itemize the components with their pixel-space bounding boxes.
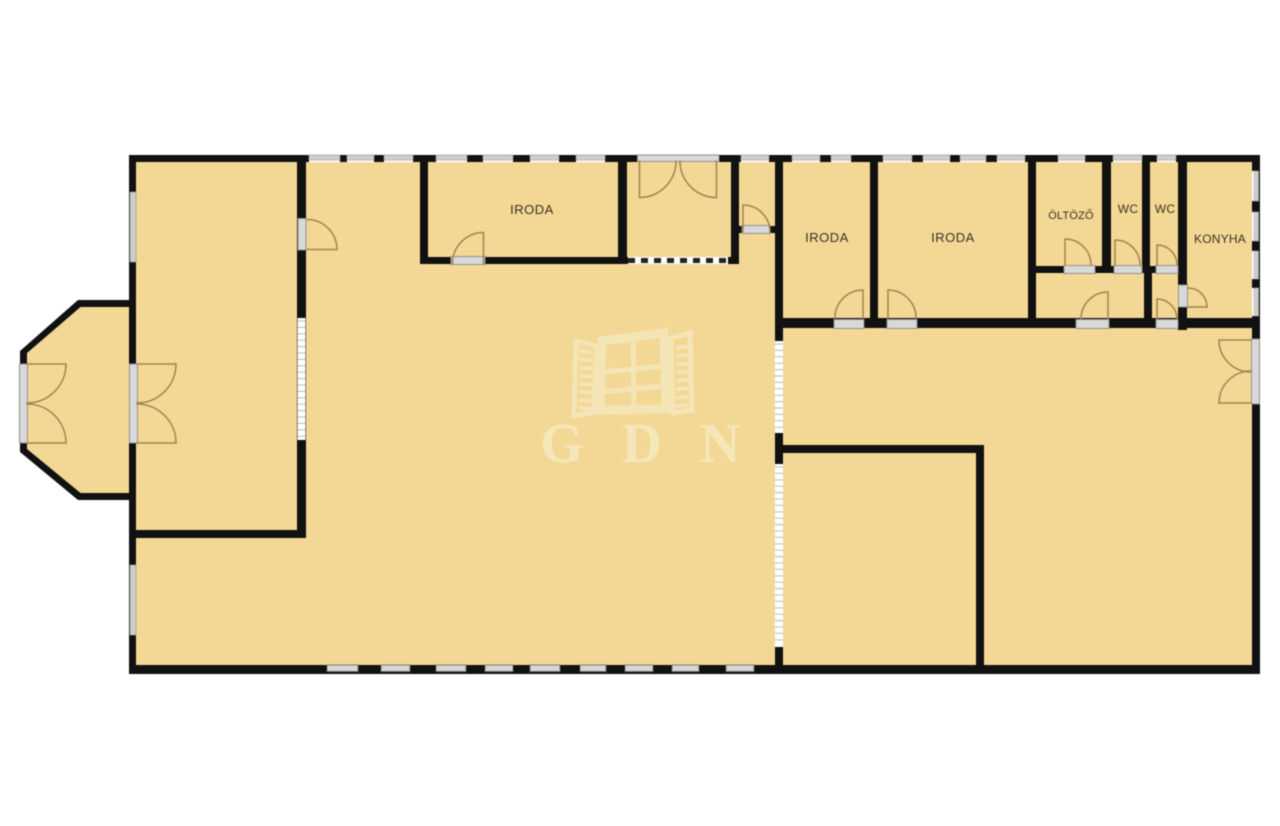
svg-text:ÖLTÖZŐ: ÖLTÖZŐ xyxy=(1048,208,1094,222)
svg-text:IRODA: IRODA xyxy=(931,230,975,245)
svg-text:WC: WC xyxy=(1155,202,1176,216)
svg-text:IRODA: IRODA xyxy=(805,230,849,245)
svg-text:KONYHA: KONYHA xyxy=(1194,232,1246,246)
svg-text:WC: WC xyxy=(1118,202,1139,216)
svg-text:IRODA: IRODA xyxy=(510,202,554,217)
svg-text:GDN: GDN xyxy=(540,413,778,475)
